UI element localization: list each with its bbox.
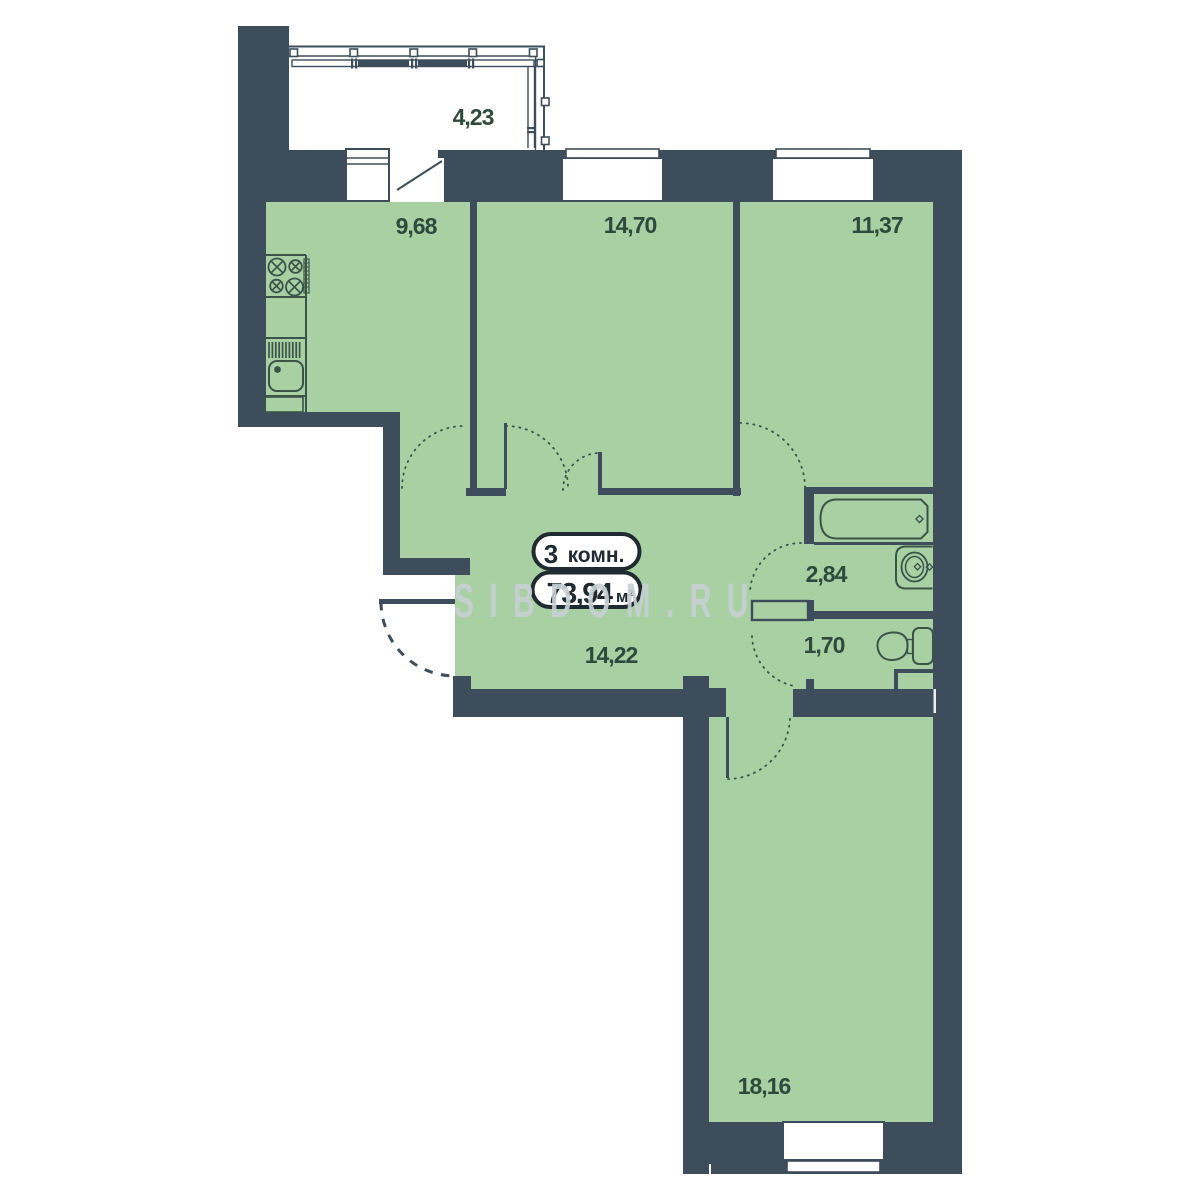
svg-text:SIBDOM.RU: SIBDOM.RU (454, 575, 764, 628)
svg-text:2,84: 2,84 (806, 561, 848, 587)
svg-text:4,23: 4,23 (453, 104, 494, 130)
svg-text:1,70: 1,70 (804, 632, 845, 658)
svg-text:9,68: 9,68 (396, 213, 438, 239)
svg-text:14,22: 14,22 (585, 642, 638, 668)
svg-text:14,70: 14,70 (604, 212, 657, 238)
svg-text:3: 3 (544, 539, 558, 569)
svg-text:11,37: 11,37 (851, 212, 902, 238)
svg-text:18,16: 18,16 (738, 1073, 791, 1099)
svg-text:комн.: комн. (568, 544, 625, 567)
